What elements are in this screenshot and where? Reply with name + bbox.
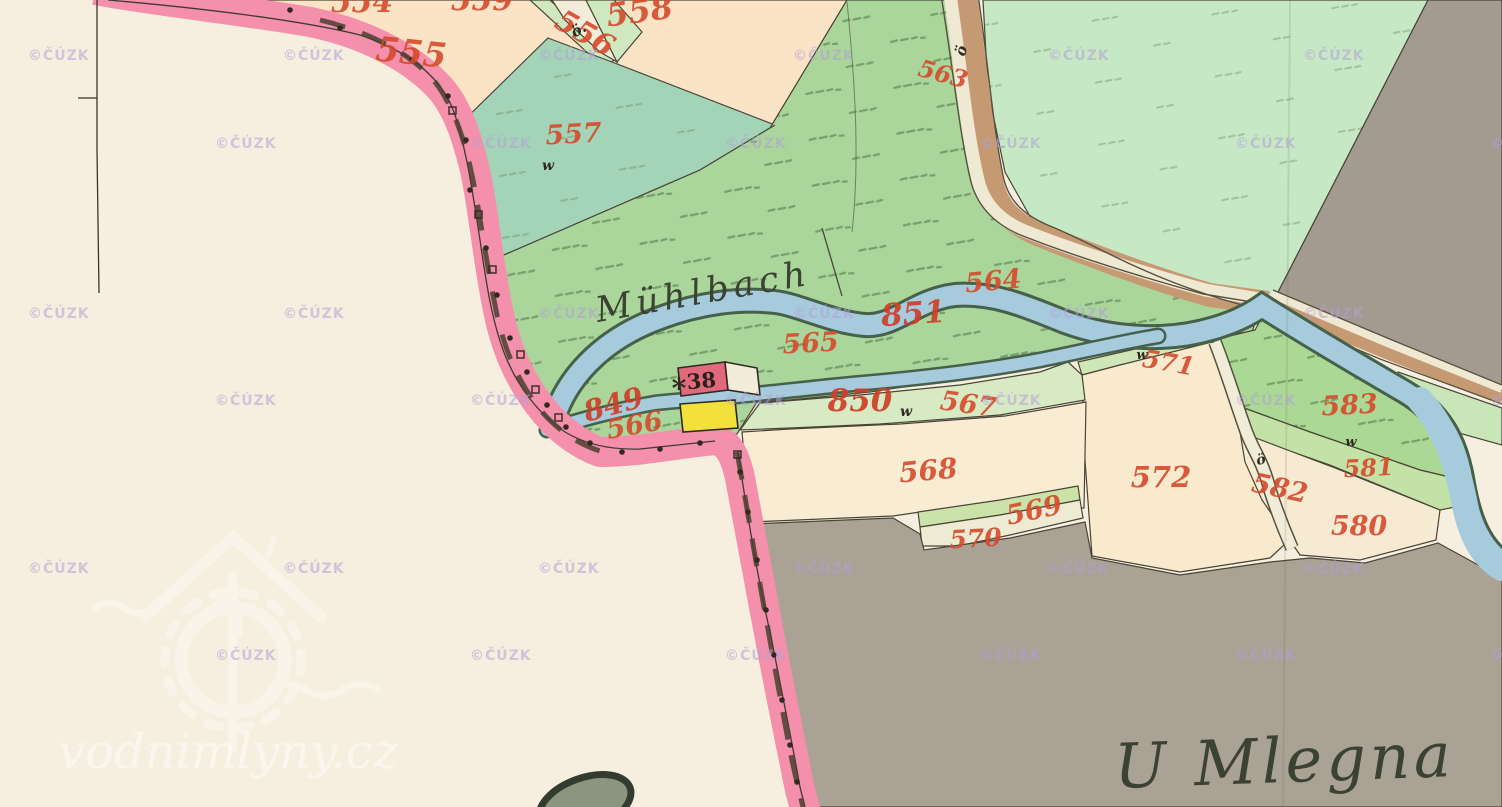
cuzk-watermark: ©ČÚZK [725, 646, 787, 664]
cuzk-watermark: ©ČÚZK [793, 304, 855, 322]
parcel-number-559: 559 [451, 0, 514, 18]
cuzk-watermark: ©ČÚZK [1235, 391, 1297, 409]
cuzk-watermark: ©ČÚZK [793, 46, 855, 64]
cuzk-watermark: ©ČÚZK [215, 134, 277, 152]
cuzk-watermark: ©ČÚZK [980, 134, 1042, 152]
building-number-labels: 38 [686, 367, 717, 394]
cuzk-watermark: ©ČÚZK [215, 646, 277, 664]
watercourse-number-851: 851 [879, 294, 947, 334]
parcel-number-581: 581 [1343, 452, 1395, 484]
cadastral-map-scan: 5545595585555565575635645655665675685695… [0, 0, 1502, 807]
building-number-38: 38 [686, 367, 717, 394]
cuzk-watermark: ©ČÚZK [215, 391, 277, 409]
cuzk-watermark: ©ČÚZK [470, 391, 532, 409]
meadow-symbol: w [1345, 435, 1357, 450]
cuzk-watermark: ©ČÚZK [1490, 391, 1502, 409]
cuzk-watermark: ©ČÚZK [1235, 134, 1297, 152]
parcel-number-570: 570 [949, 523, 1003, 555]
cuzk-watermark: ©ČÚZK [1490, 134, 1502, 152]
parcel-number-555: 555 [374, 29, 449, 76]
cuzk-watermark: ©ČÚZK [1235, 646, 1297, 664]
cuzk-watermark: ©ČÚZK [28, 559, 90, 577]
cuzk-watermark: ©ČÚZK [470, 646, 532, 664]
cuzk-watermark: ©ČÚZK [1048, 46, 1110, 64]
area-name-u-mlegna: U Mlegna [1113, 718, 1456, 803]
meadow-symbol: w [1136, 348, 1148, 363]
cuzk-watermark: ©ČÚZK [1303, 559, 1365, 577]
cuzk-watermark: ©ČÚZK [283, 46, 345, 64]
cuzk-watermark: ©ČÚZK [1048, 559, 1110, 577]
cuzk-watermark: ©ČÚZK [725, 391, 787, 409]
cuzk-watermark: ©ČÚZK [470, 134, 532, 152]
cuzk-watermark: ©ČÚZK [28, 304, 90, 322]
building-38-annex [725, 362, 760, 395]
parcel-number-580: 580 [1331, 511, 1388, 542]
cuzk-watermark: ©ČÚZK [1048, 304, 1110, 322]
cuzk-watermark: ©ČÚZK [1490, 646, 1502, 664]
cadastral-map: 5545595585555565575635645655665675685695… [0, 0, 1502, 807]
parcel-number-557: 557 [545, 118, 603, 152]
cuzk-watermark: ©ČÚZK [283, 304, 345, 322]
parcel-number-572: 572 [1131, 460, 1192, 494]
cuzk-watermark: ©ČÚZK [1303, 46, 1365, 64]
cuzk-watermark: ©ČÚZK [1303, 304, 1365, 322]
parcel-number-565: 565 [782, 327, 840, 361]
cuzk-watermark: ©ČÚZK [538, 559, 600, 577]
vodnimlyny-watermark-text: vodnimlyny.cz [58, 724, 399, 780]
meadow-symbol: w [542, 158, 555, 174]
watercourse-number-850: 850 [827, 383, 893, 419]
cuzk-watermark: ©ČÚZK [980, 646, 1042, 664]
cuzk-watermark: ©ČÚZK [28, 46, 90, 64]
cuzk-watermark: ©ČÚZK [538, 304, 600, 322]
parcel-number-568: 568 [898, 452, 959, 490]
parcel-number-564: 564 [964, 264, 1023, 300]
cuzk-watermark: ©ČÚZK [725, 134, 787, 152]
cuzk-watermark: ©ČÚZK [283, 559, 345, 577]
cuzk-watermark: ©ČÚZK [538, 46, 600, 64]
parcel-number-554: 554 [331, 0, 394, 20]
house-mark-symbol: * [672, 372, 687, 405]
meadow-symbol: w [900, 404, 913, 420]
cuzk-watermark: ©ČÚZK [980, 391, 1042, 409]
cuzk-watermark: ©ČÚZK [793, 559, 855, 577]
parcel-number-583: 583 [1321, 389, 1379, 423]
